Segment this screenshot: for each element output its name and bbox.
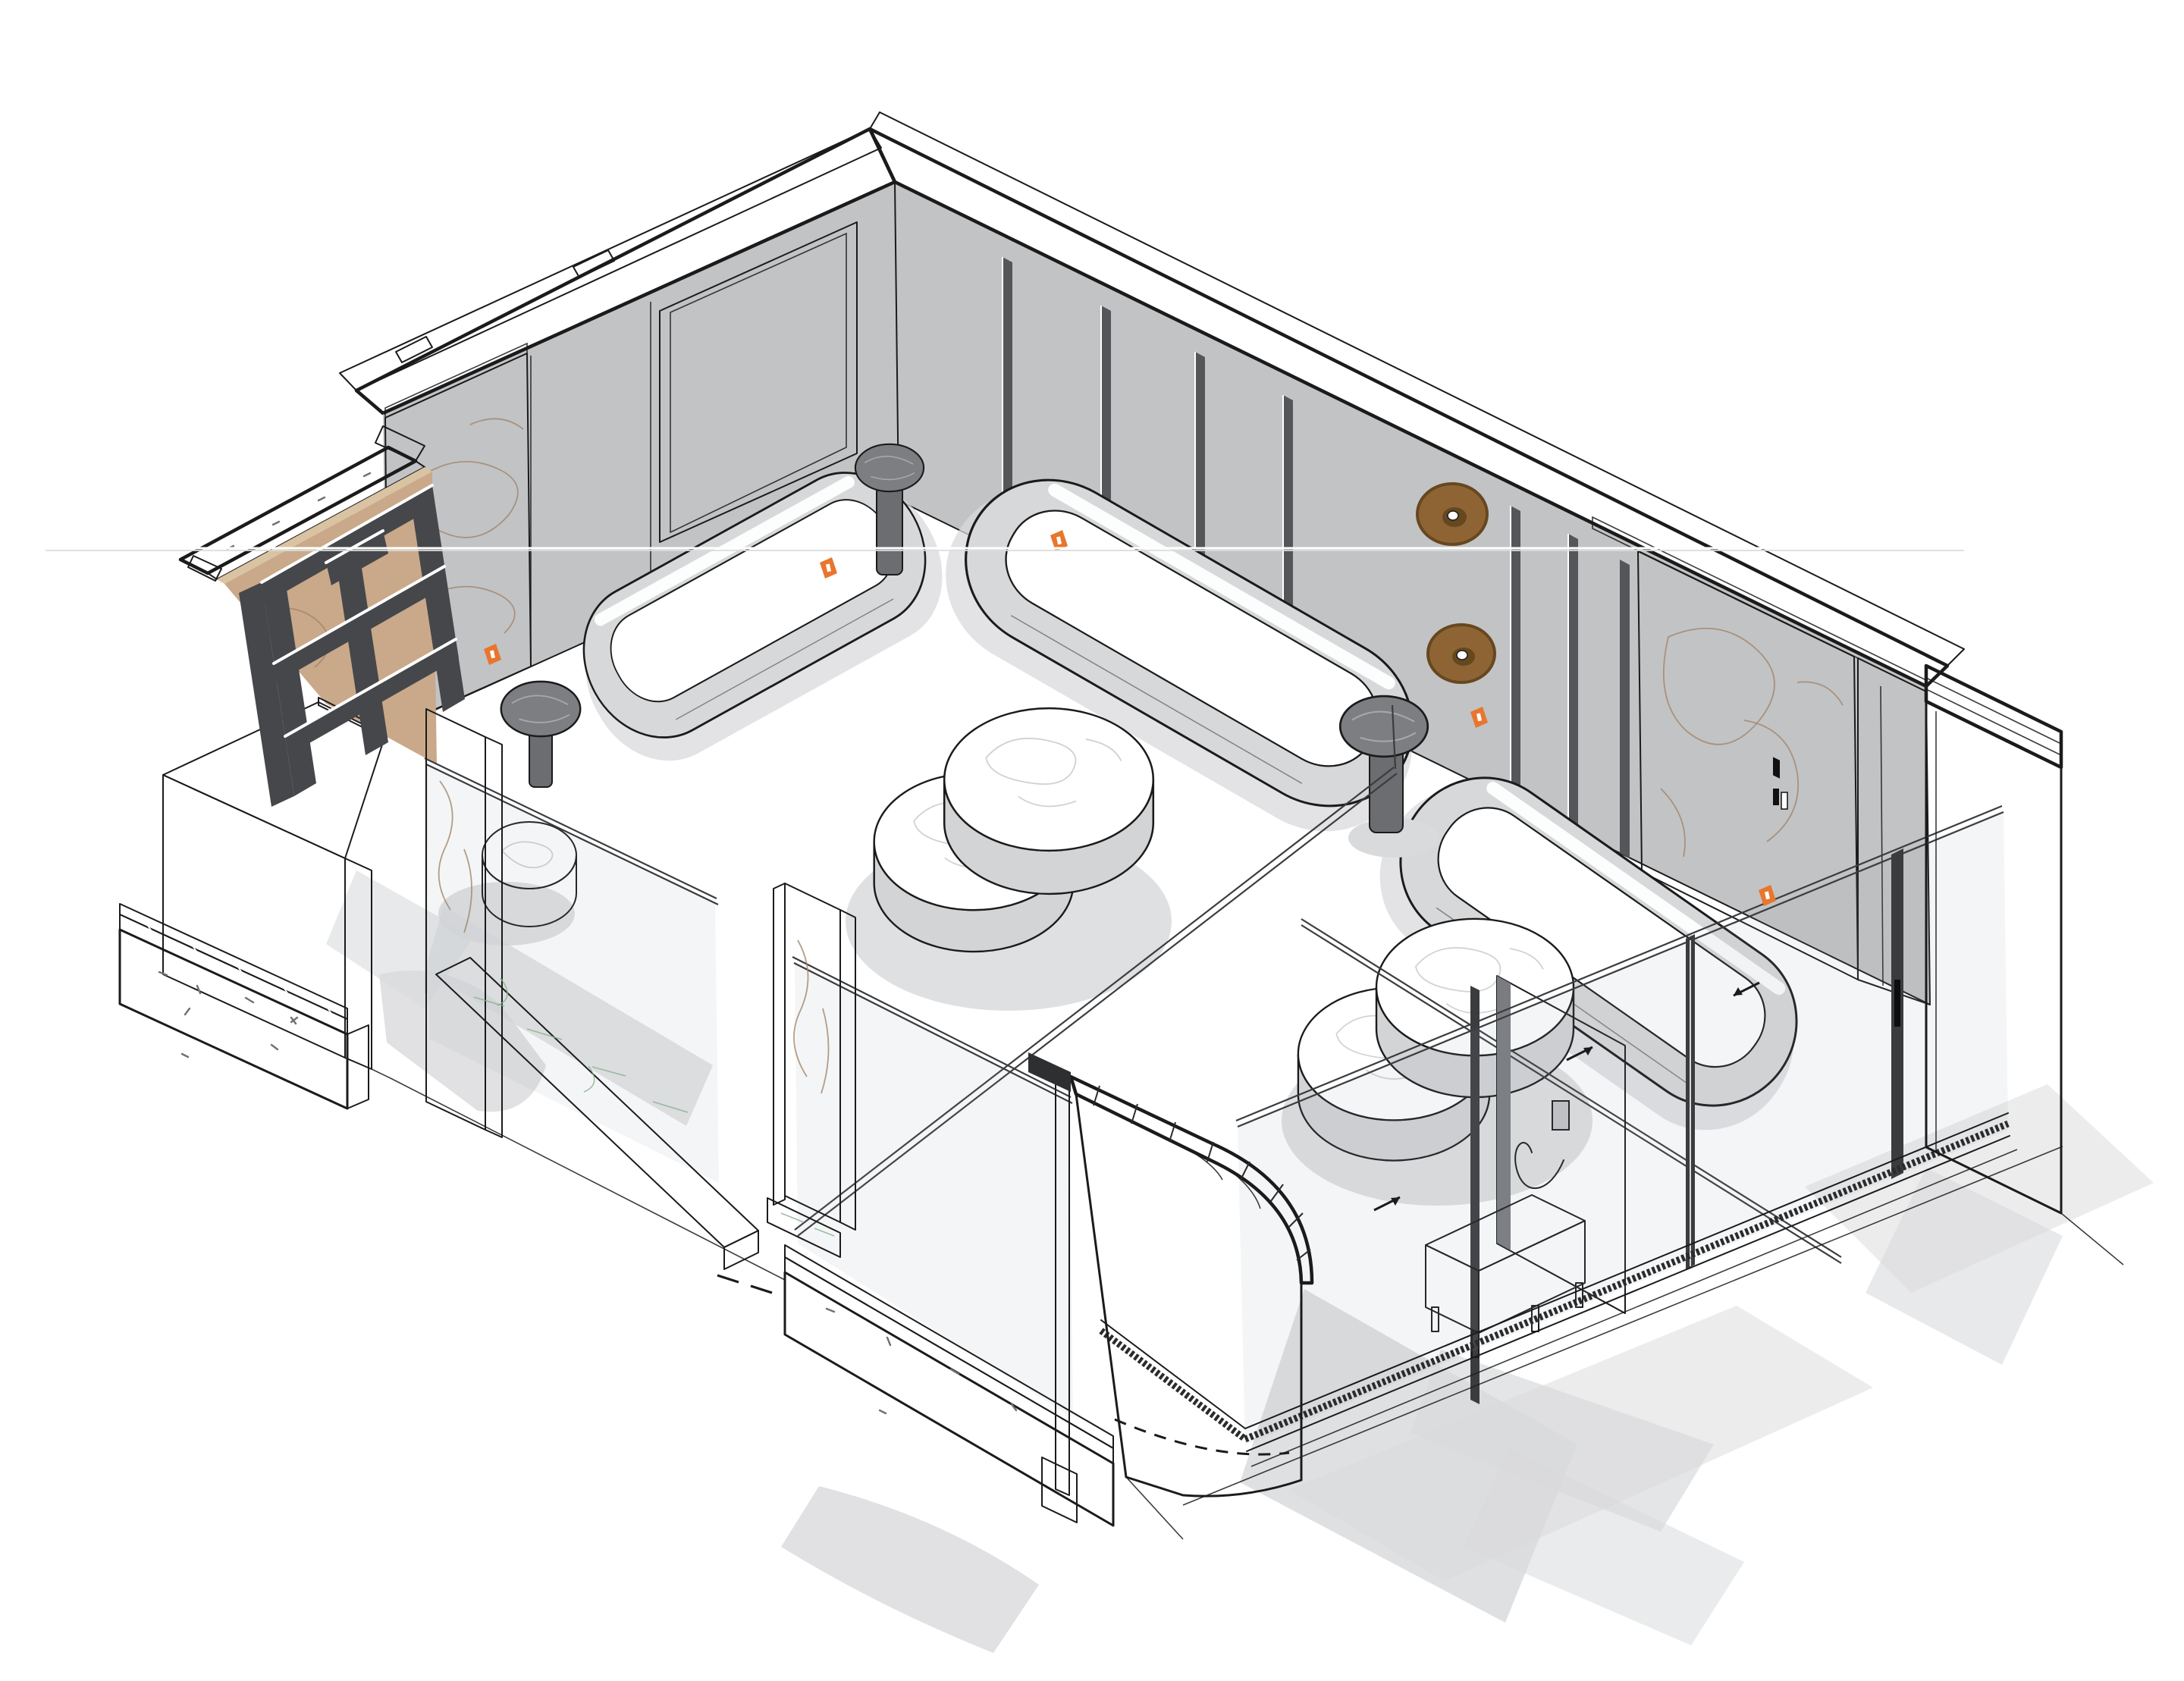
door-swing-dashes bbox=[717, 1275, 772, 1293]
base-block bbox=[1042, 1457, 1077, 1523]
level-line bbox=[0, 548, 2184, 550]
door-handle bbox=[1894, 980, 1900, 1027]
coffee-tables-centre bbox=[846, 708, 1172, 1011]
axonometric-room-view bbox=[0, 0, 2184, 1681]
mushroom-table-left bbox=[501, 682, 581, 787]
render-canvas bbox=[0, 0, 2184, 1681]
